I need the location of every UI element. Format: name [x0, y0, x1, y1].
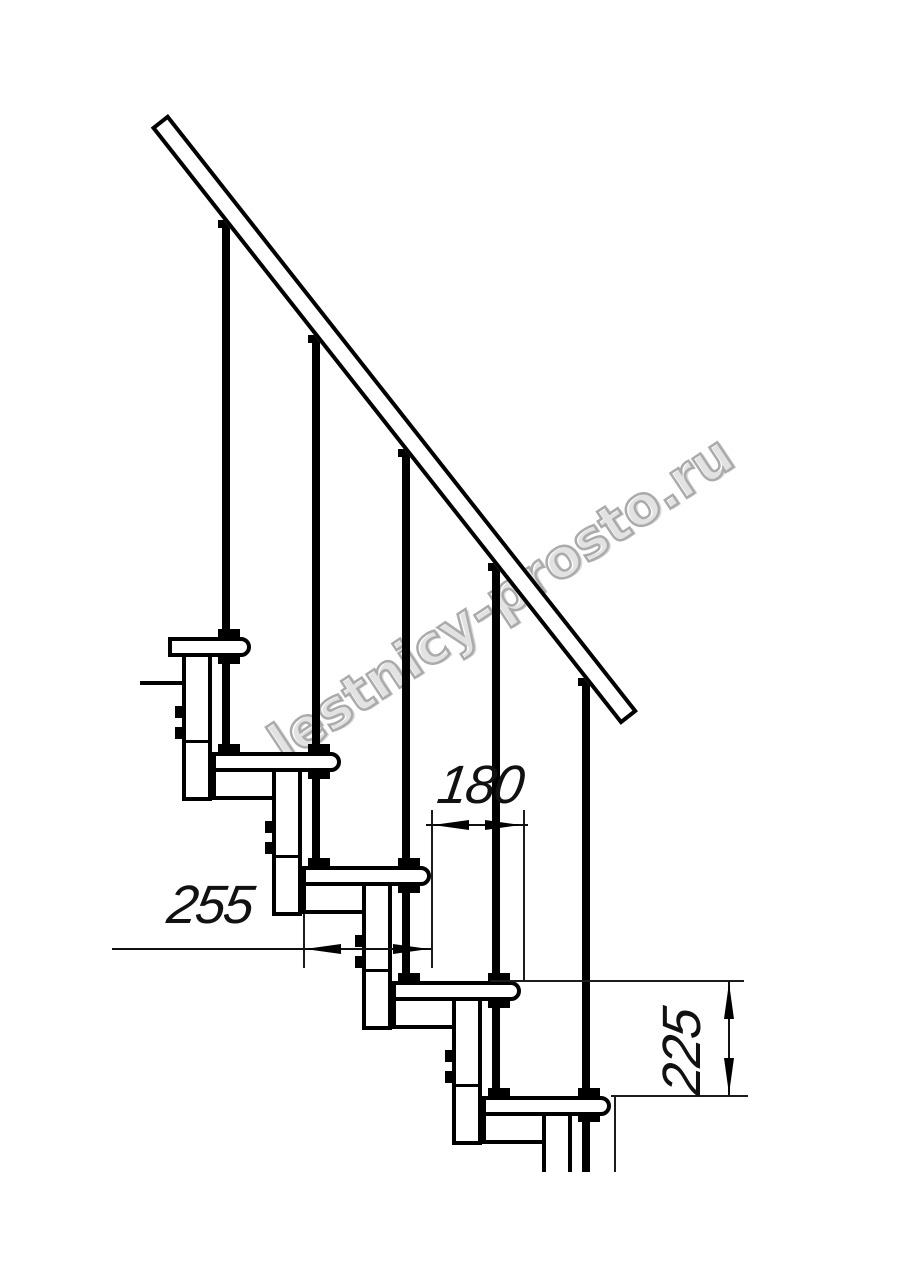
- arrowhead-right: [393, 944, 429, 954]
- extension-line: [614, 1096, 616, 1172]
- extension-line: [490, 980, 744, 982]
- dimension-label-255: 255: [164, 878, 256, 932]
- dimension-label-225: 225: [655, 1006, 709, 1098]
- staircase-technical-drawing: lestnicy-prosto.ru 180 255 225: [0, 0, 914, 1280]
- extension-line: [303, 914, 305, 968]
- arrowhead-up: [724, 983, 734, 1019]
- dimension-line-255: [112, 948, 432, 950]
- arrowhead-left: [433, 820, 469, 830]
- dimension-label-180: 180: [434, 758, 526, 812]
- arrowhead-down: [724, 1058, 734, 1094]
- extension-line: [523, 810, 525, 982]
- arrowhead-right: [485, 820, 521, 830]
- arrowhead-left: [305, 944, 341, 954]
- dimension-annotations: 180 255 225: [0, 0, 914, 1280]
- extension-line: [431, 810, 433, 968]
